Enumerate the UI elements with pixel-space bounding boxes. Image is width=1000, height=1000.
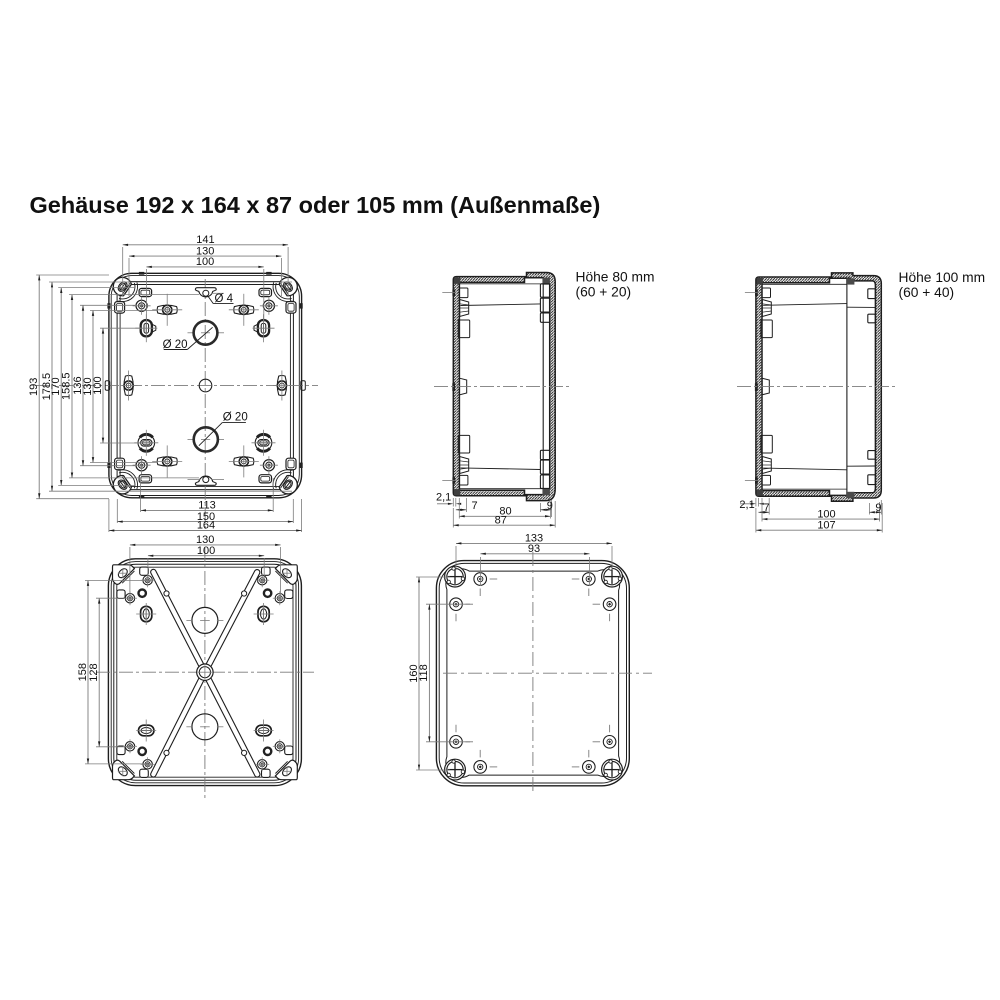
svg-text:9: 9: [875, 502, 881, 514]
svg-text:(60 + 20): (60 + 20): [576, 285, 632, 300]
svg-text:193: 193: [28, 378, 40, 396]
svg-text:113: 113: [198, 500, 216, 512]
svg-text:100: 100: [92, 376, 104, 394]
svg-text:141: 141: [196, 234, 214, 246]
svg-text:107: 107: [817, 519, 835, 531]
svg-text:128: 128: [88, 663, 100, 681]
svg-text:Gehäuse 192 x 164 x 87 oder 10: Gehäuse 192 x 164 x 87 oder 105 mm (Auße…: [30, 192, 601, 218]
svg-text:Höhe 80 mm: Höhe 80 mm: [576, 270, 655, 285]
svg-text:Ø 20: Ø 20: [223, 412, 248, 424]
svg-text:100: 100: [197, 545, 215, 557]
svg-text:100: 100: [196, 256, 214, 268]
svg-text:118: 118: [418, 664, 430, 682]
svg-text:2,1: 2,1: [436, 491, 451, 503]
svg-text:93: 93: [528, 543, 540, 555]
svg-text:Höhe 100 mm: Höhe 100 mm: [899, 270, 986, 285]
svg-text:164: 164: [197, 520, 215, 532]
svg-text:2,1: 2,1: [739, 499, 754, 511]
svg-text:Ø 20: Ø 20: [163, 339, 188, 351]
svg-text:158: 158: [77, 663, 89, 681]
svg-text:(60 + 40): (60 + 40): [899, 285, 955, 300]
svg-text:87: 87: [495, 514, 507, 526]
svg-text:9: 9: [547, 500, 553, 512]
svg-text:7: 7: [764, 502, 770, 514]
svg-text:7: 7: [472, 500, 478, 512]
svg-text:Ø 4: Ø 4: [215, 293, 234, 305]
